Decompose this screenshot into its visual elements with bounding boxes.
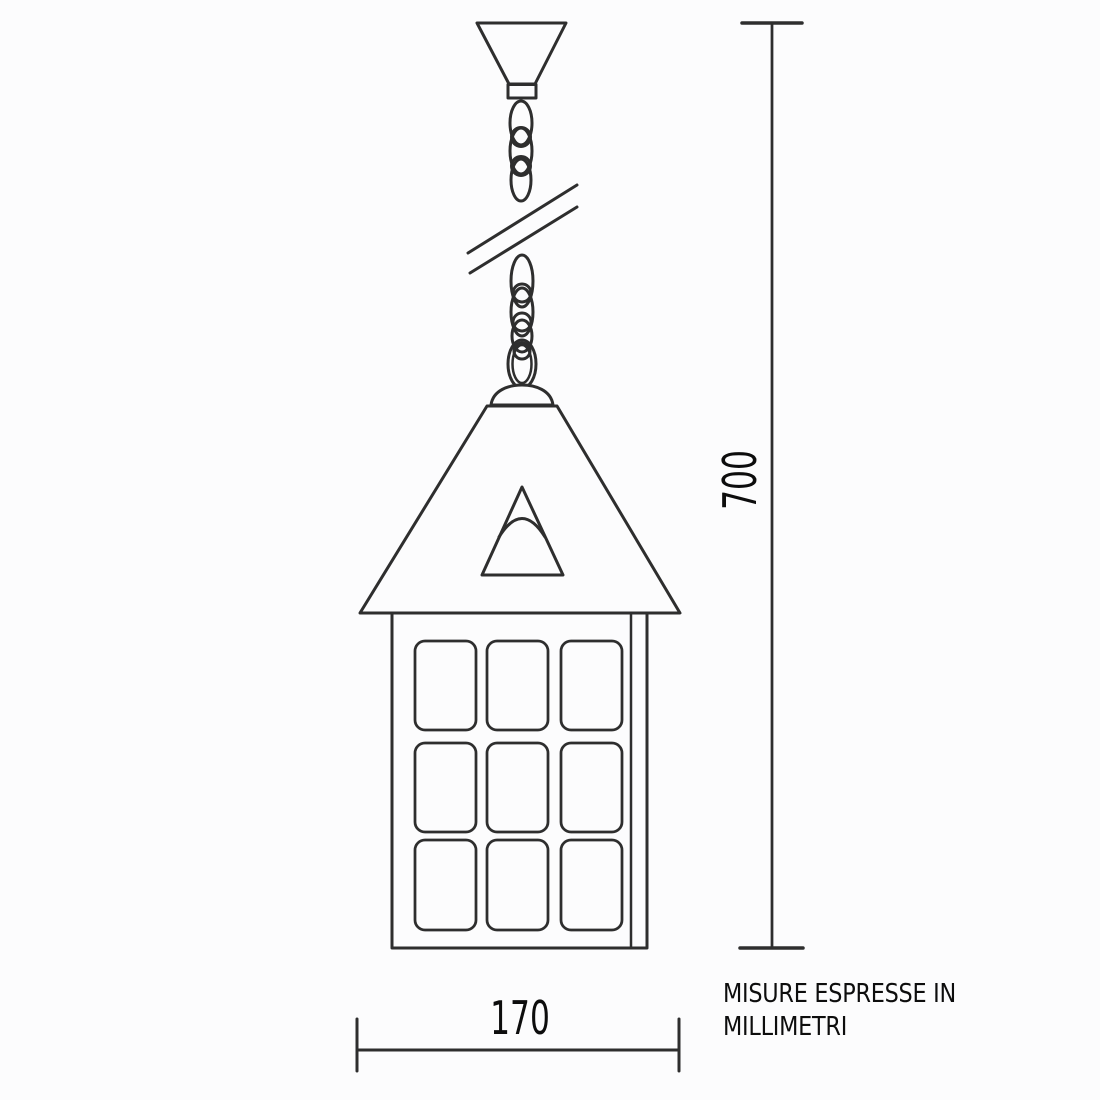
units-note-line1: MISURE ESPRESSE IN — [723, 978, 956, 1011]
dimension-drawing-page: 700 170 MISURE ESPRESSE IN MILLIMETRI — [0, 0, 1100, 1100]
chain-lower-icon — [511, 255, 533, 352]
break-mark-icon — [468, 185, 577, 273]
units-note-line2: MILLIMETRI — [723, 1011, 956, 1044]
finial-dome-icon — [491, 385, 553, 405]
roof — [360, 406, 680, 613]
units-note: MISURE ESPRESSE IN MILLIMETRI — [723, 978, 956, 1044]
height-dimension-label: 700 — [713, 450, 767, 510]
width-dimension-label: 170 — [490, 991, 550, 1045]
lantern-technical-drawing — [0, 0, 1100, 1100]
ceiling-cone-icon — [477, 23, 566, 98]
hanging-ring-icon — [508, 340, 536, 388]
lantern-body — [392, 613, 647, 948]
chain-upper-icon — [510, 101, 532, 201]
